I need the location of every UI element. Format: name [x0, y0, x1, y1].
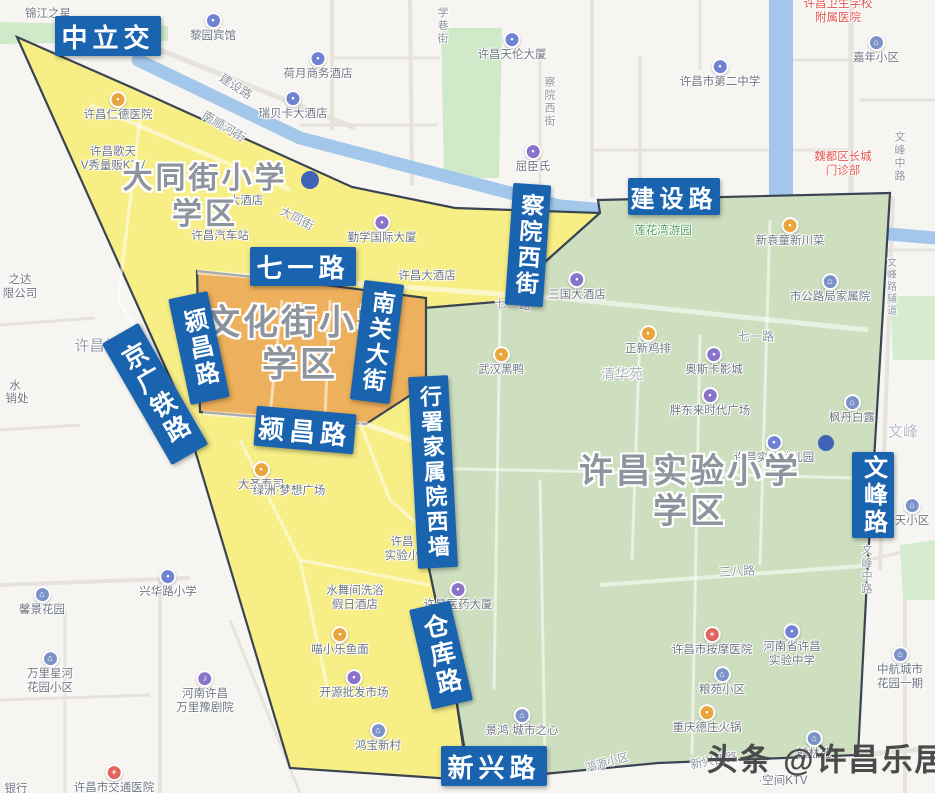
map-base-graphics	[0, 0, 935, 793]
map-canvas[interactable]: 建设路南顺河街大同街学巷街察院西街七一路七一路三八路新兴西路鸿源小区文峰中路文峰…	[0, 0, 935, 793]
watermark: 头条 @许昌乐居	[707, 735, 935, 780]
zone-polygon-wenhua	[197, 271, 426, 424]
